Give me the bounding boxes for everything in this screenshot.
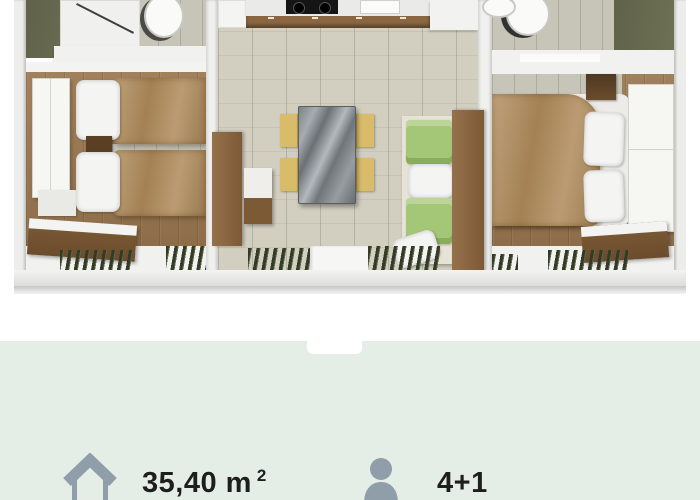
shower <box>60 0 140 48</box>
entry-door <box>310 246 368 272</box>
person-icon <box>362 456 400 500</box>
room-double-bedroom <box>492 0 674 272</box>
kitchen-counter <box>246 0 430 16</box>
nightstand <box>586 74 616 100</box>
cooktop <box>286 0 338 14</box>
wardrobe <box>32 78 70 198</box>
outer-wall <box>14 0 26 286</box>
partition-wall <box>26 62 206 72</box>
outer-wall <box>674 0 686 286</box>
twin-bed-pillow <box>76 80 120 140</box>
capacity-value: 4+1 <box>437 467 488 500</box>
specs-panel: 35,40 m2 4+1 <box>0 341 700 500</box>
kitchen-sink <box>360 0 400 14</box>
room-twin-bedroom <box>26 0 206 272</box>
area-superscript: 2 <box>257 466 267 485</box>
house-icon <box>62 453 118 500</box>
image-shadow <box>14 286 686 294</box>
double-bed-pillow <box>583 169 625 222</box>
storage-box <box>38 190 76 216</box>
bathroom-counter <box>492 50 674 74</box>
bathroom-right-wet-area <box>614 0 674 52</box>
room-kitchen-living <box>218 0 478 272</box>
dining-chair <box>354 114 374 147</box>
sofa-pillow <box>408 164 454 198</box>
side-cabinet <box>244 168 272 224</box>
dining-chair <box>354 158 374 191</box>
page: 35,40 m2 4+1 <box>0 0 700 500</box>
dining-table <box>298 106 356 204</box>
fridge-cabinet <box>218 0 248 28</box>
area-value: 35,40 m2 <box>142 467 267 500</box>
double-bed-pillow <box>583 111 625 166</box>
area-number: 35,40 m <box>142 467 252 499</box>
wood-wall-panel <box>212 132 242 246</box>
wood-wall-panel <box>452 110 484 272</box>
louvered-window <box>60 250 132 272</box>
twin-bed-blanket <box>112 150 206 216</box>
kitchen-cabinets <box>246 16 430 28</box>
doorstep-tab <box>307 330 362 354</box>
kitchen-cabinet-tall <box>430 0 478 30</box>
floorplan-image <box>0 0 700 295</box>
outer-wall <box>14 270 686 286</box>
dining-chair <box>280 114 300 147</box>
twin-bed-blanket <box>112 78 206 144</box>
louvered-window <box>166 246 206 272</box>
sofa-cushion <box>406 120 452 164</box>
louvered-window <box>248 248 310 272</box>
twin-bed-pillow <box>76 152 120 212</box>
bathroom-shelf <box>54 46 206 62</box>
dining-chair <box>280 158 300 191</box>
louvered-window <box>368 246 440 272</box>
louvered-window <box>548 250 628 272</box>
wardrobe <box>628 84 674 232</box>
